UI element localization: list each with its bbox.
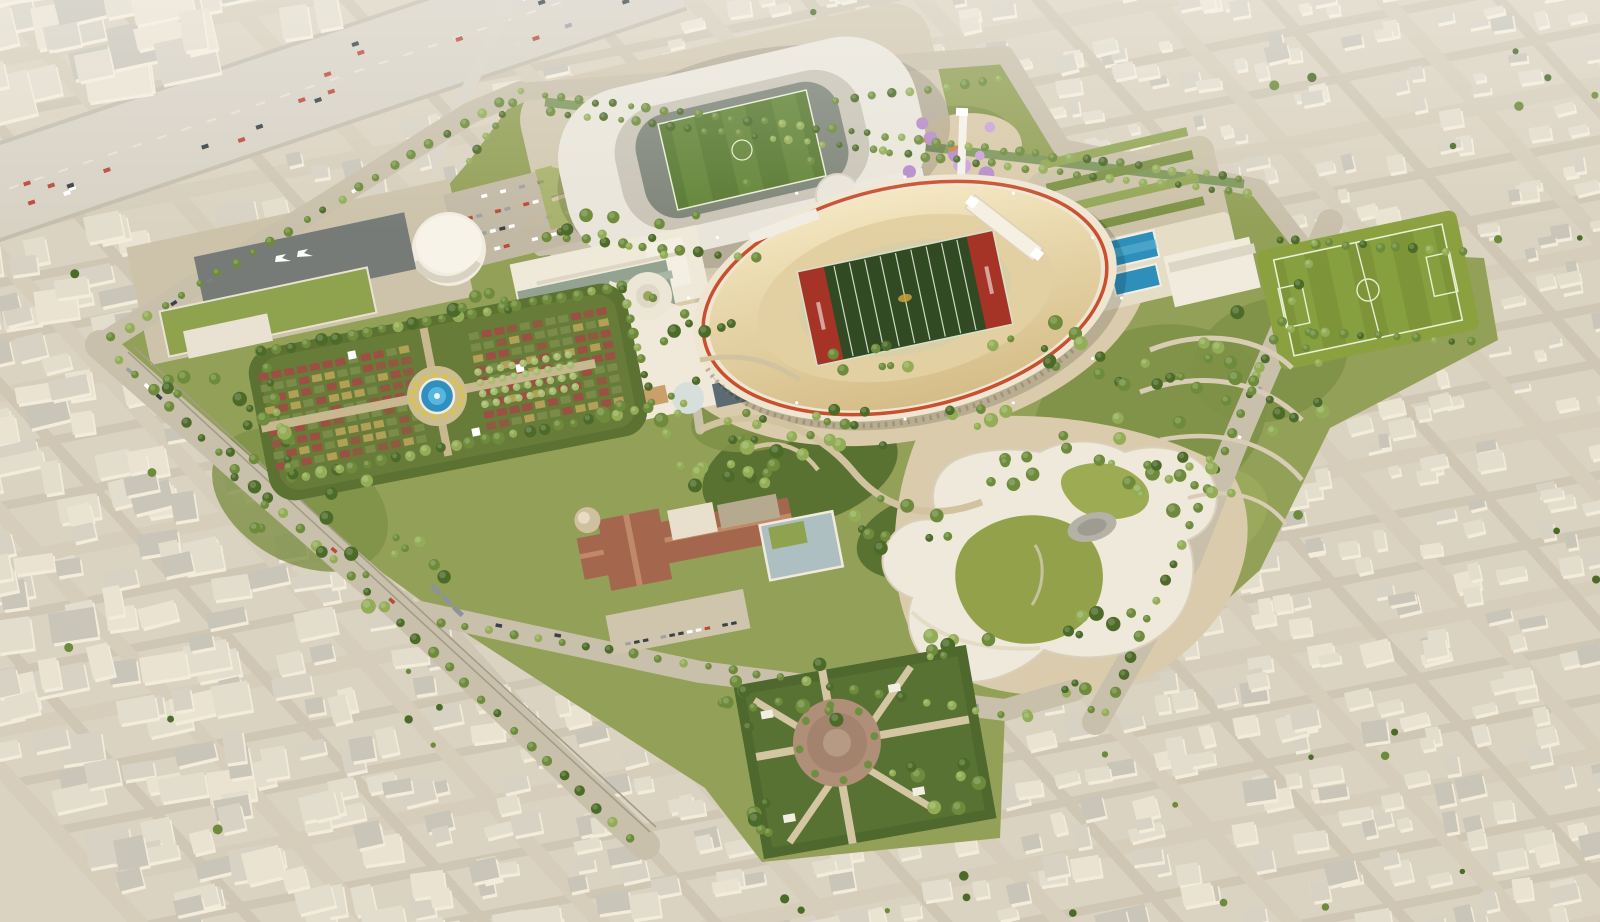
atmosphere-haze [0, 0, 1600, 922]
aerial-render [0, 0, 1600, 922]
scene-canvas [0, 0, 1600, 922]
